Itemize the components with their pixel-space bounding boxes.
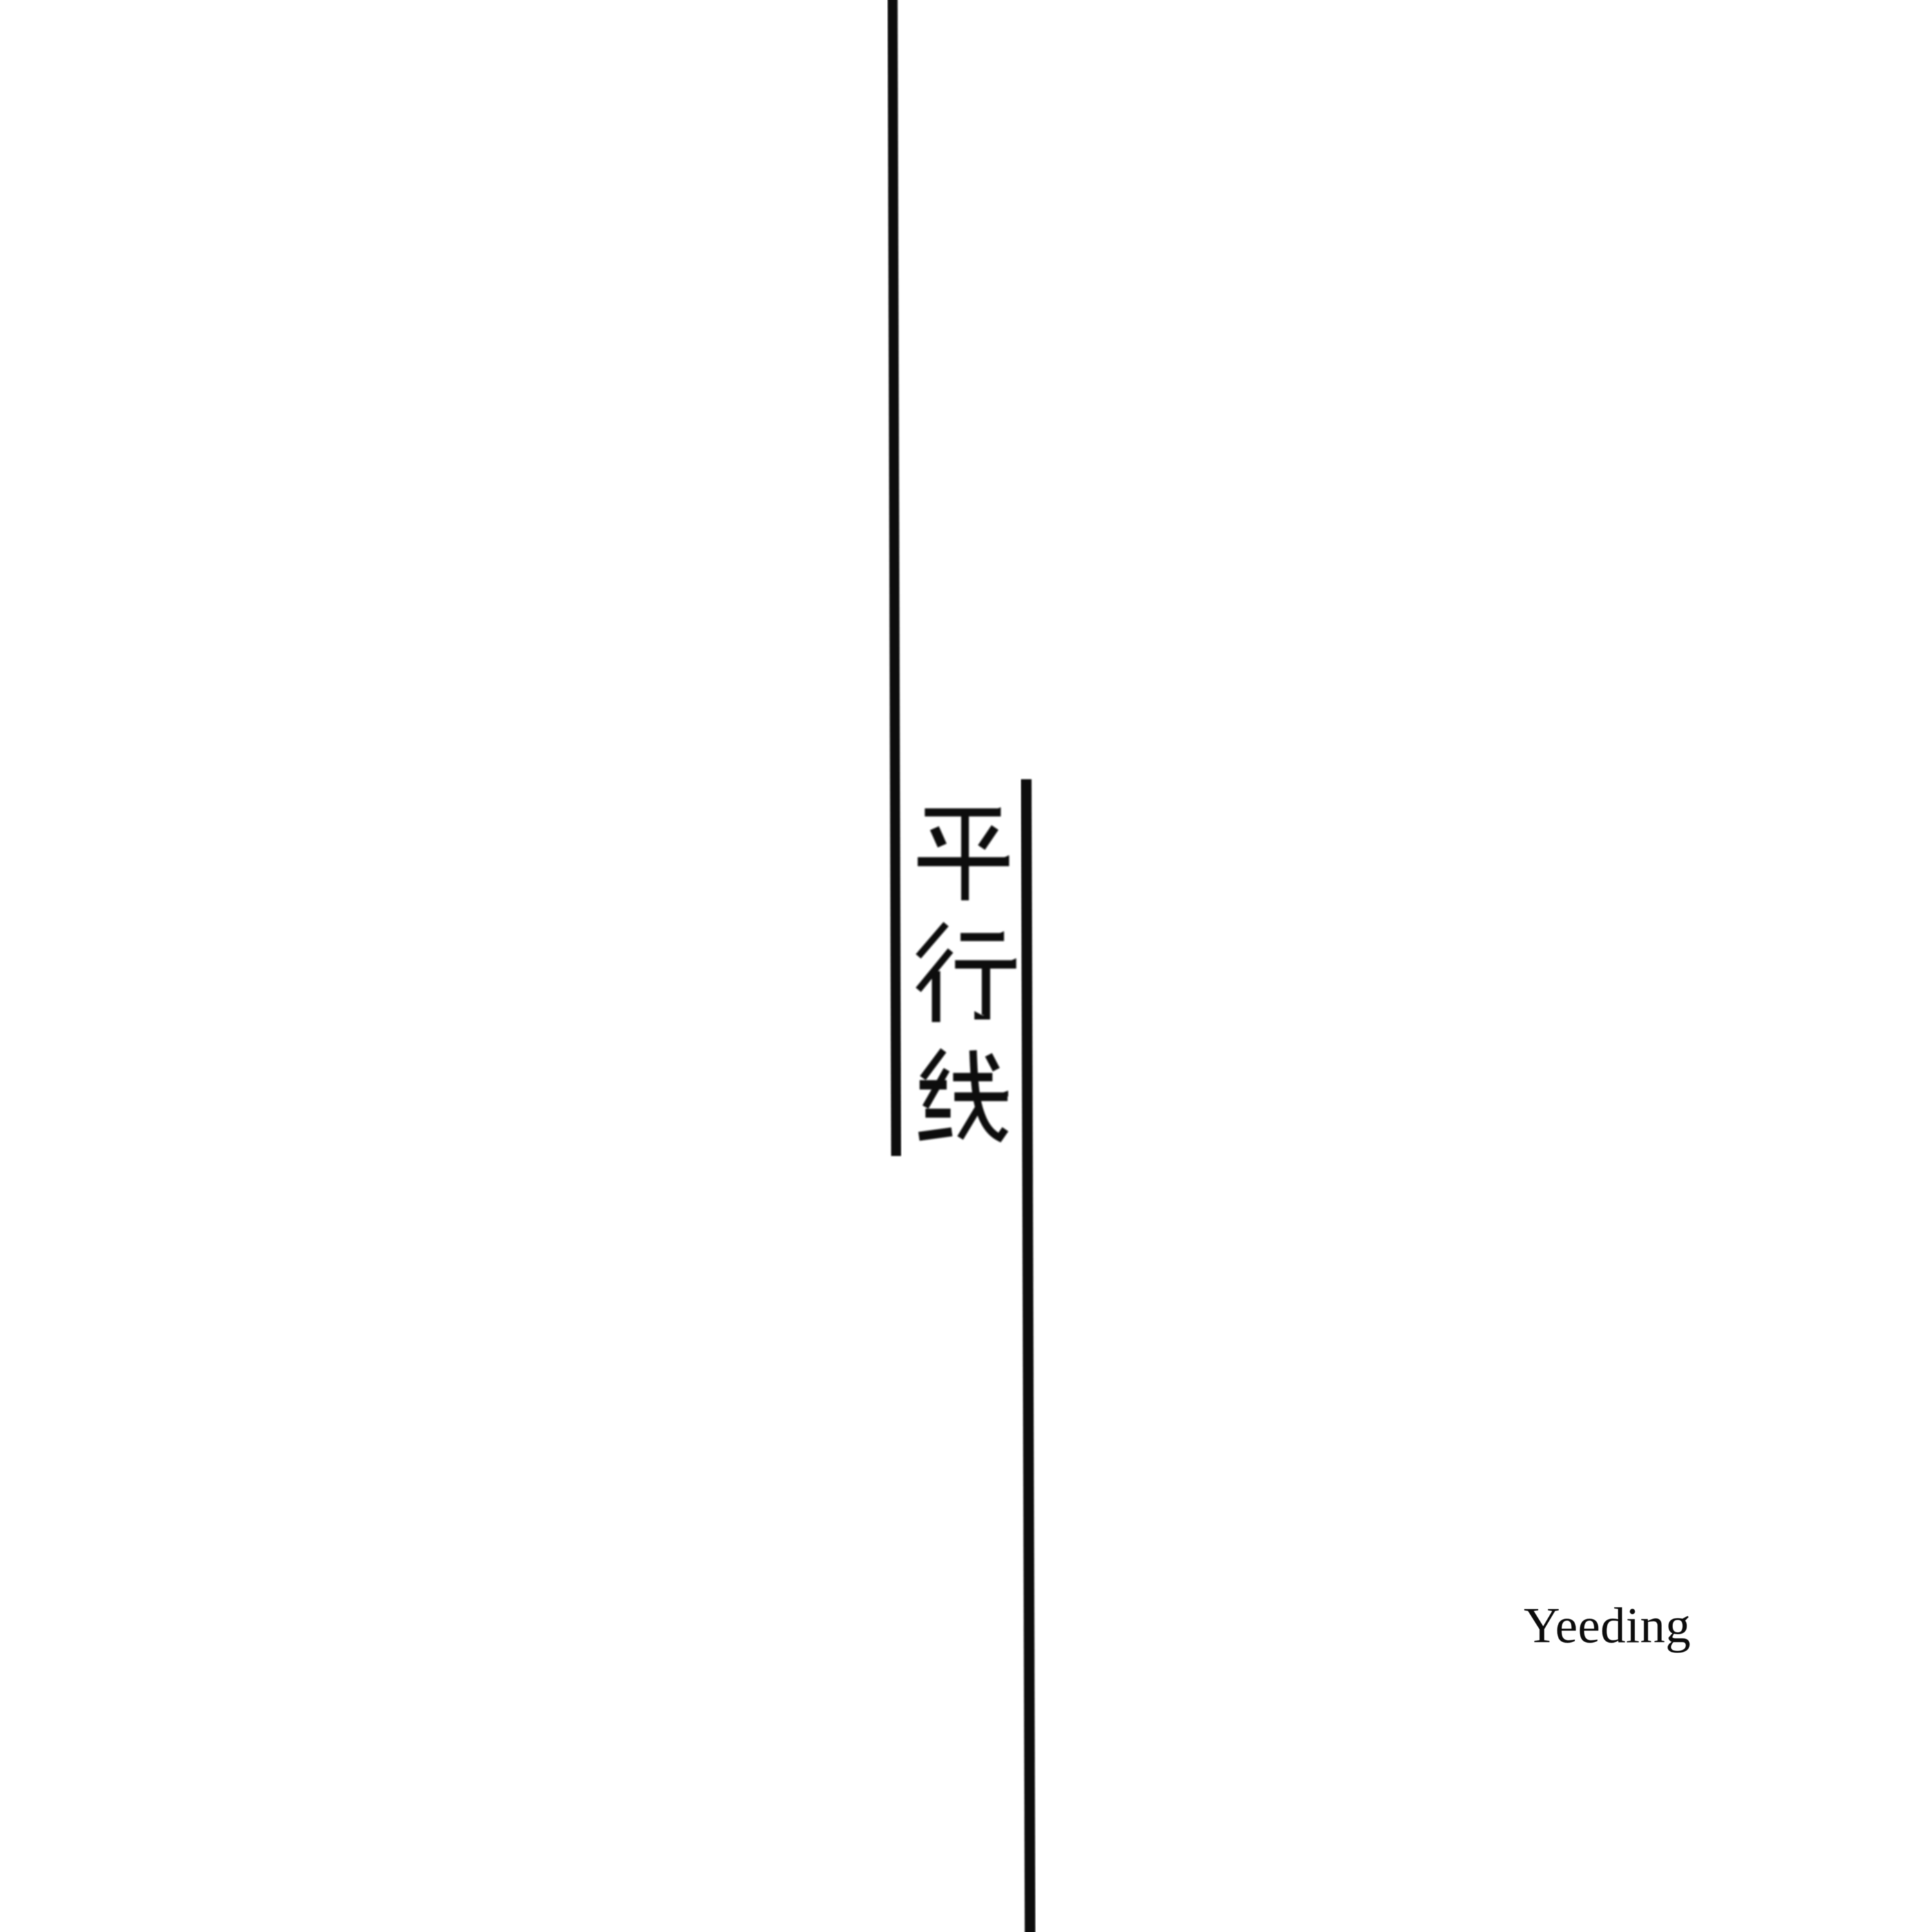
svg-text:Yeeding: Yeeding <box>1524 1597 1691 1653</box>
